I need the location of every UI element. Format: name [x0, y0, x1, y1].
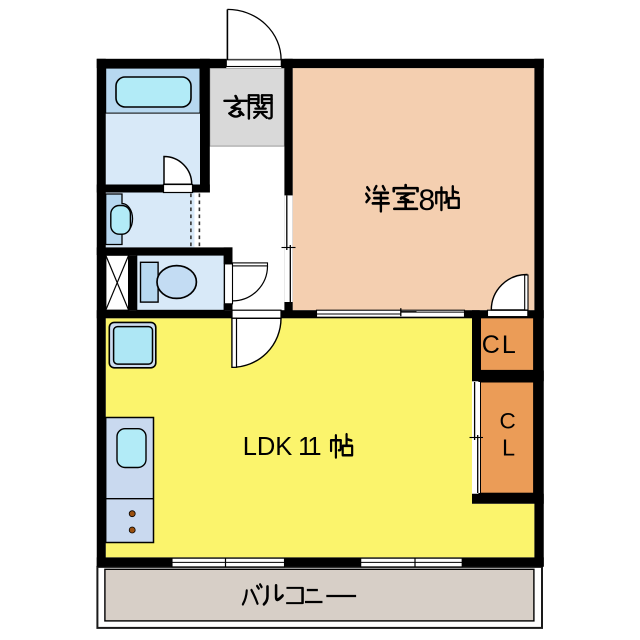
svg-text:L: L — [502, 435, 515, 461]
svg-text:C: C — [499, 408, 515, 433]
svg-text:8: 8 — [419, 184, 436, 217]
svg-text:LDK: LDK — [243, 433, 293, 461]
svg-text:1: 1 — [307, 433, 321, 461]
svg-text:CL: CL — [482, 331, 518, 359]
